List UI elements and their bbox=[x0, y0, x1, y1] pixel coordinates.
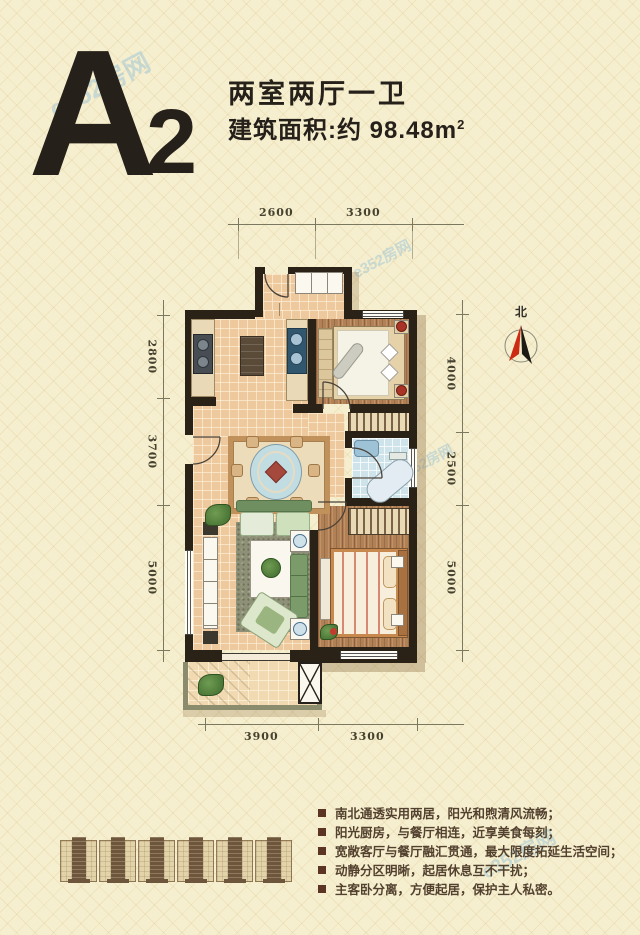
building-unit bbox=[60, 840, 97, 882]
kitchen-cabinet bbox=[240, 336, 264, 376]
bullet-square-icon bbox=[318, 828, 326, 836]
bullet-square-icon bbox=[318, 809, 326, 817]
flower bbox=[330, 628, 337, 635]
sink-basin bbox=[290, 333, 303, 346]
floorplan-poster: e352房网 e352房网 e352房网 e352房网 e352房网 A 2 两… bbox=[0, 0, 640, 935]
plan-shadow bbox=[322, 663, 425, 672]
feature-item: 阳光厨房，与餐厅相连，近享美食每刻； bbox=[318, 824, 623, 843]
wall bbox=[185, 406, 193, 435]
wall bbox=[409, 319, 417, 404]
building-unit bbox=[216, 840, 253, 882]
wall bbox=[255, 267, 265, 274]
stove-burner bbox=[197, 356, 209, 368]
wall bbox=[350, 404, 417, 413]
wall bbox=[255, 267, 263, 317]
stove-burner bbox=[197, 339, 209, 351]
master-bedroom-window bbox=[340, 651, 398, 659]
bedroom-desk bbox=[318, 328, 333, 398]
table-plant bbox=[261, 558, 281, 578]
feature-item: 主客卧分离，方便起居，保护主人私密。 bbox=[318, 881, 623, 900]
wall bbox=[293, 404, 308, 413]
dining-chair bbox=[290, 436, 303, 448]
building-block bbox=[228, 837, 242, 879]
balcony-plant bbox=[198, 674, 224, 696]
bed-striped-duvet bbox=[342, 552, 380, 634]
wall bbox=[308, 319, 316, 404]
wall bbox=[345, 431, 409, 438]
speaker bbox=[203, 631, 218, 644]
building-block bbox=[111, 837, 125, 879]
tv-console bbox=[203, 537, 218, 629]
end-table-decor bbox=[293, 534, 307, 548]
entry-cabinet bbox=[295, 272, 343, 294]
bullet-square-icon bbox=[318, 847, 326, 855]
wall bbox=[290, 650, 318, 662]
building-block bbox=[72, 837, 86, 879]
wall bbox=[185, 464, 193, 550]
site-buildings-illustration bbox=[60, 836, 292, 882]
bedside-lamp bbox=[396, 321, 407, 332]
shaft-x-mark bbox=[300, 664, 320, 702]
entry-steps bbox=[279, 303, 300, 316]
duct-shaft bbox=[298, 662, 322, 704]
floor-plan bbox=[0, 0, 640, 935]
end-table-decor bbox=[293, 622, 307, 636]
sofa-cushion bbox=[240, 512, 274, 536]
compass: 北 bbox=[498, 303, 544, 367]
bullet-square-icon bbox=[318, 885, 326, 893]
building-block bbox=[267, 837, 281, 879]
washbasin bbox=[354, 440, 379, 457]
hall-closet bbox=[348, 412, 411, 433]
master-closet bbox=[348, 508, 411, 535]
building-unit bbox=[99, 840, 136, 882]
building-unit bbox=[177, 840, 214, 882]
feature-item: 南北通透实用两居，阳光和煦清风流畅； bbox=[318, 805, 623, 824]
building-block bbox=[189, 837, 203, 879]
living-room-window bbox=[185, 550, 193, 635]
potted-plant bbox=[205, 504, 231, 526]
plan-shadow bbox=[183, 710, 326, 717]
dining-chair bbox=[246, 436, 259, 448]
wall bbox=[345, 438, 352, 448]
side-sofa bbox=[290, 554, 308, 618]
balcony-sliding-door bbox=[222, 653, 290, 661]
feature-list: 南北通透实用两居，阳光和煦清风流畅； 阳光厨房，与餐厅相连，近享美食每刻； 宽敞… bbox=[318, 805, 623, 900]
plan-shadow bbox=[417, 315, 426, 663]
wall bbox=[185, 650, 222, 662]
sink-basin bbox=[290, 352, 303, 365]
nightstand bbox=[391, 556, 404, 568]
dining-chair bbox=[308, 464, 320, 477]
dining-chair bbox=[231, 464, 243, 477]
balcony-wall bbox=[183, 662, 188, 710]
wall bbox=[310, 530, 318, 663]
bedroom-window bbox=[362, 311, 404, 318]
building-unit bbox=[138, 840, 175, 882]
wall bbox=[185, 397, 216, 406]
nightstand bbox=[391, 614, 404, 626]
building-unit bbox=[255, 840, 292, 882]
sofa-back bbox=[236, 500, 312, 512]
bullet-square-icon bbox=[318, 866, 326, 874]
compass-arrow-icon bbox=[498, 317, 544, 367]
wall bbox=[185, 310, 255, 319]
wall bbox=[308, 404, 323, 413]
feature-item: 动静分区明晰，起居休息互不干扰； bbox=[318, 862, 623, 881]
building-block bbox=[150, 837, 164, 879]
bedside-lamp bbox=[396, 385, 407, 396]
balcony-wall bbox=[183, 705, 322, 710]
feature-item: 宽敞客厅与餐厅融汇贯通，最大限度拓延生活空间； bbox=[318, 843, 623, 862]
